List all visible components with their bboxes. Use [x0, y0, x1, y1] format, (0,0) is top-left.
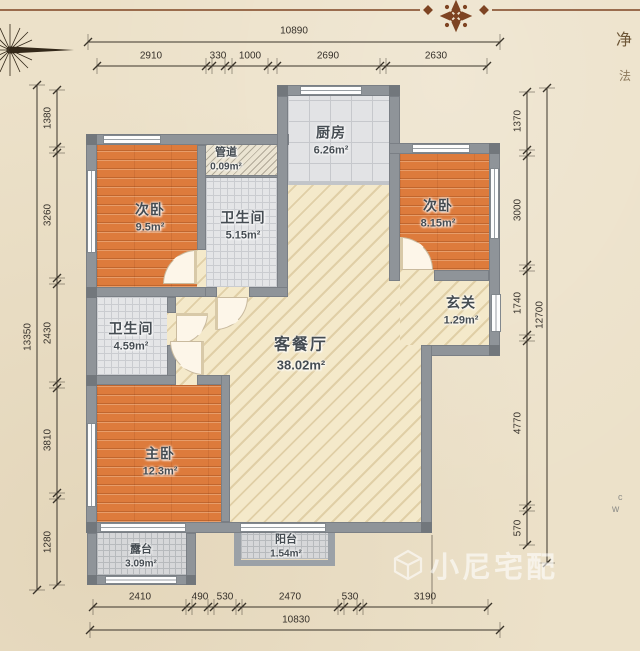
room-label-foyer: 玄关 1.29m²	[444, 294, 479, 329]
wall	[434, 270, 489, 281]
window	[300, 86, 362, 95]
dimension-label: 3810	[43, 429, 54, 451]
room-area: 9.5m²	[135, 220, 165, 235]
room-area: 4.59m²	[109, 339, 154, 354]
room-name: 阳台	[270, 532, 302, 547]
room-label-duct: 管道 0.09m²	[210, 145, 242, 174]
room-label-kitchen: 厨房 6.26m²	[314, 124, 349, 159]
dimension-label: 1740	[513, 292, 524, 314]
dimension-label: 1000	[239, 51, 261, 62]
wall	[167, 297, 176, 313]
room-label-bedroom-right: 次卧 8.15m²	[421, 197, 456, 232]
watermark-text: 小尼宅配	[430, 544, 558, 586]
wall	[205, 287, 217, 297]
column-marker	[489, 345, 500, 356]
entry-door	[491, 294, 501, 332]
window	[105, 576, 177, 584]
window	[87, 423, 96, 507]
window	[490, 168, 499, 239]
edge-clipped-text: c	[618, 492, 623, 502]
window	[87, 170, 96, 253]
room-label-terrace: 露台 3.09m²	[125, 542, 157, 571]
wall	[277, 96, 288, 297]
column-marker	[86, 522, 97, 533]
dimension-label: 3260	[43, 204, 54, 226]
terrace-door-window	[100, 523, 186, 532]
room-label-bath-mid: 卫生间 4.59m²	[109, 320, 154, 355]
column-marker	[421, 522, 432, 533]
room-area: 3.09m²	[125, 558, 157, 572]
wall	[205, 175, 278, 178]
edge-clipped-text: w	[612, 504, 619, 515]
room-name: 次卧	[135, 201, 165, 221]
room-area: 1.29m²	[444, 313, 479, 328]
window	[412, 144, 470, 153]
dimension-label: 530	[217, 592, 234, 603]
floorplan-canvas: 次卧 9.5m² 管道 0.09m² 卫生间 5.15m² 厨房 6.26m² …	[0, 0, 640, 651]
column-marker	[489, 143, 500, 154]
room-label-bedroom-left: 次卧 9.5m²	[135, 201, 165, 236]
dimension-label: 1380	[43, 107, 54, 129]
room-area: 12.3m²	[143, 464, 178, 479]
dimension-label: 2430	[43, 322, 54, 344]
compass-rose-icon	[0, 24, 74, 76]
dimension-label: 2410	[129, 592, 151, 603]
dimension-label: 10890	[280, 26, 308, 37]
wall	[86, 287, 206, 297]
room-area: 8.15m²	[421, 216, 456, 231]
column-marker	[389, 85, 400, 96]
column-marker	[277, 85, 288, 96]
wall	[197, 145, 206, 250]
dimension-label: 490	[192, 592, 209, 603]
wall	[221, 375, 230, 522]
room-name: 厨房	[314, 124, 349, 144]
room-name: 主卧	[143, 445, 178, 465]
wall	[86, 375, 176, 385]
room-name: 玄关	[444, 294, 479, 314]
room-name: 客餐厅	[274, 335, 328, 357]
dimension-label: 2690	[317, 51, 339, 62]
room-label-balcony: 阳台 1.54m²	[270, 532, 302, 561]
room-name: 卫生间	[221, 209, 266, 229]
room-name: 卫生间	[109, 320, 154, 340]
room-area: 0.09m²	[210, 161, 242, 175]
room-name: 次卧	[421, 197, 456, 217]
dimension-label: 1370	[513, 110, 524, 132]
room-area: 1.54m²	[270, 548, 302, 562]
column-marker	[186, 575, 196, 585]
room-area: 38.02m²	[274, 357, 328, 375]
dimension-label: 3000	[513, 199, 524, 221]
dimension-label: 13350	[23, 323, 34, 351]
edge-clipped-text: 法	[619, 67, 631, 84]
kitchen-threshold	[288, 181, 389, 185]
edge-clipped-text: 净	[616, 26, 632, 50]
wall	[249, 287, 288, 297]
window	[103, 135, 161, 144]
dimension-label: 4770	[513, 412, 524, 434]
balcony-sliding-door	[240, 523, 326, 532]
room-label-bath-top: 卫生间 5.15m²	[221, 209, 266, 244]
wall	[389, 96, 400, 281]
ornament-divider-icon	[0, 1, 640, 31]
dimension-label: 530	[342, 592, 359, 603]
dimension-label: 1280	[43, 531, 54, 553]
room-area: 6.26m²	[314, 143, 349, 158]
dimension-label: 10830	[282, 615, 310, 626]
column-marker	[86, 134, 97, 145]
dimension-label: 2910	[140, 51, 162, 62]
dimension-label: 2630	[425, 51, 447, 62]
room-label-master: 主卧 12.3m²	[143, 445, 178, 480]
room-name: 管道	[210, 145, 242, 160]
room-name: 露台	[125, 542, 157, 557]
watermark: 小尼宅配	[392, 544, 558, 586]
room-area: 5.15m²	[221, 228, 266, 243]
wall	[421, 345, 432, 533]
dimension-label: 2470	[279, 592, 301, 603]
dimension-label: 330	[210, 51, 227, 62]
column-marker	[86, 287, 97, 298]
dimension-label: 12700	[535, 301, 546, 329]
dimension-label: 570	[513, 520, 524, 537]
room-label-living: 客餐厅 38.02m²	[274, 335, 328, 376]
cube-logo-icon	[392, 549, 424, 581]
dimension-label: 3190	[414, 592, 436, 603]
column-marker	[86, 375, 97, 386]
column-marker	[87, 575, 97, 585]
